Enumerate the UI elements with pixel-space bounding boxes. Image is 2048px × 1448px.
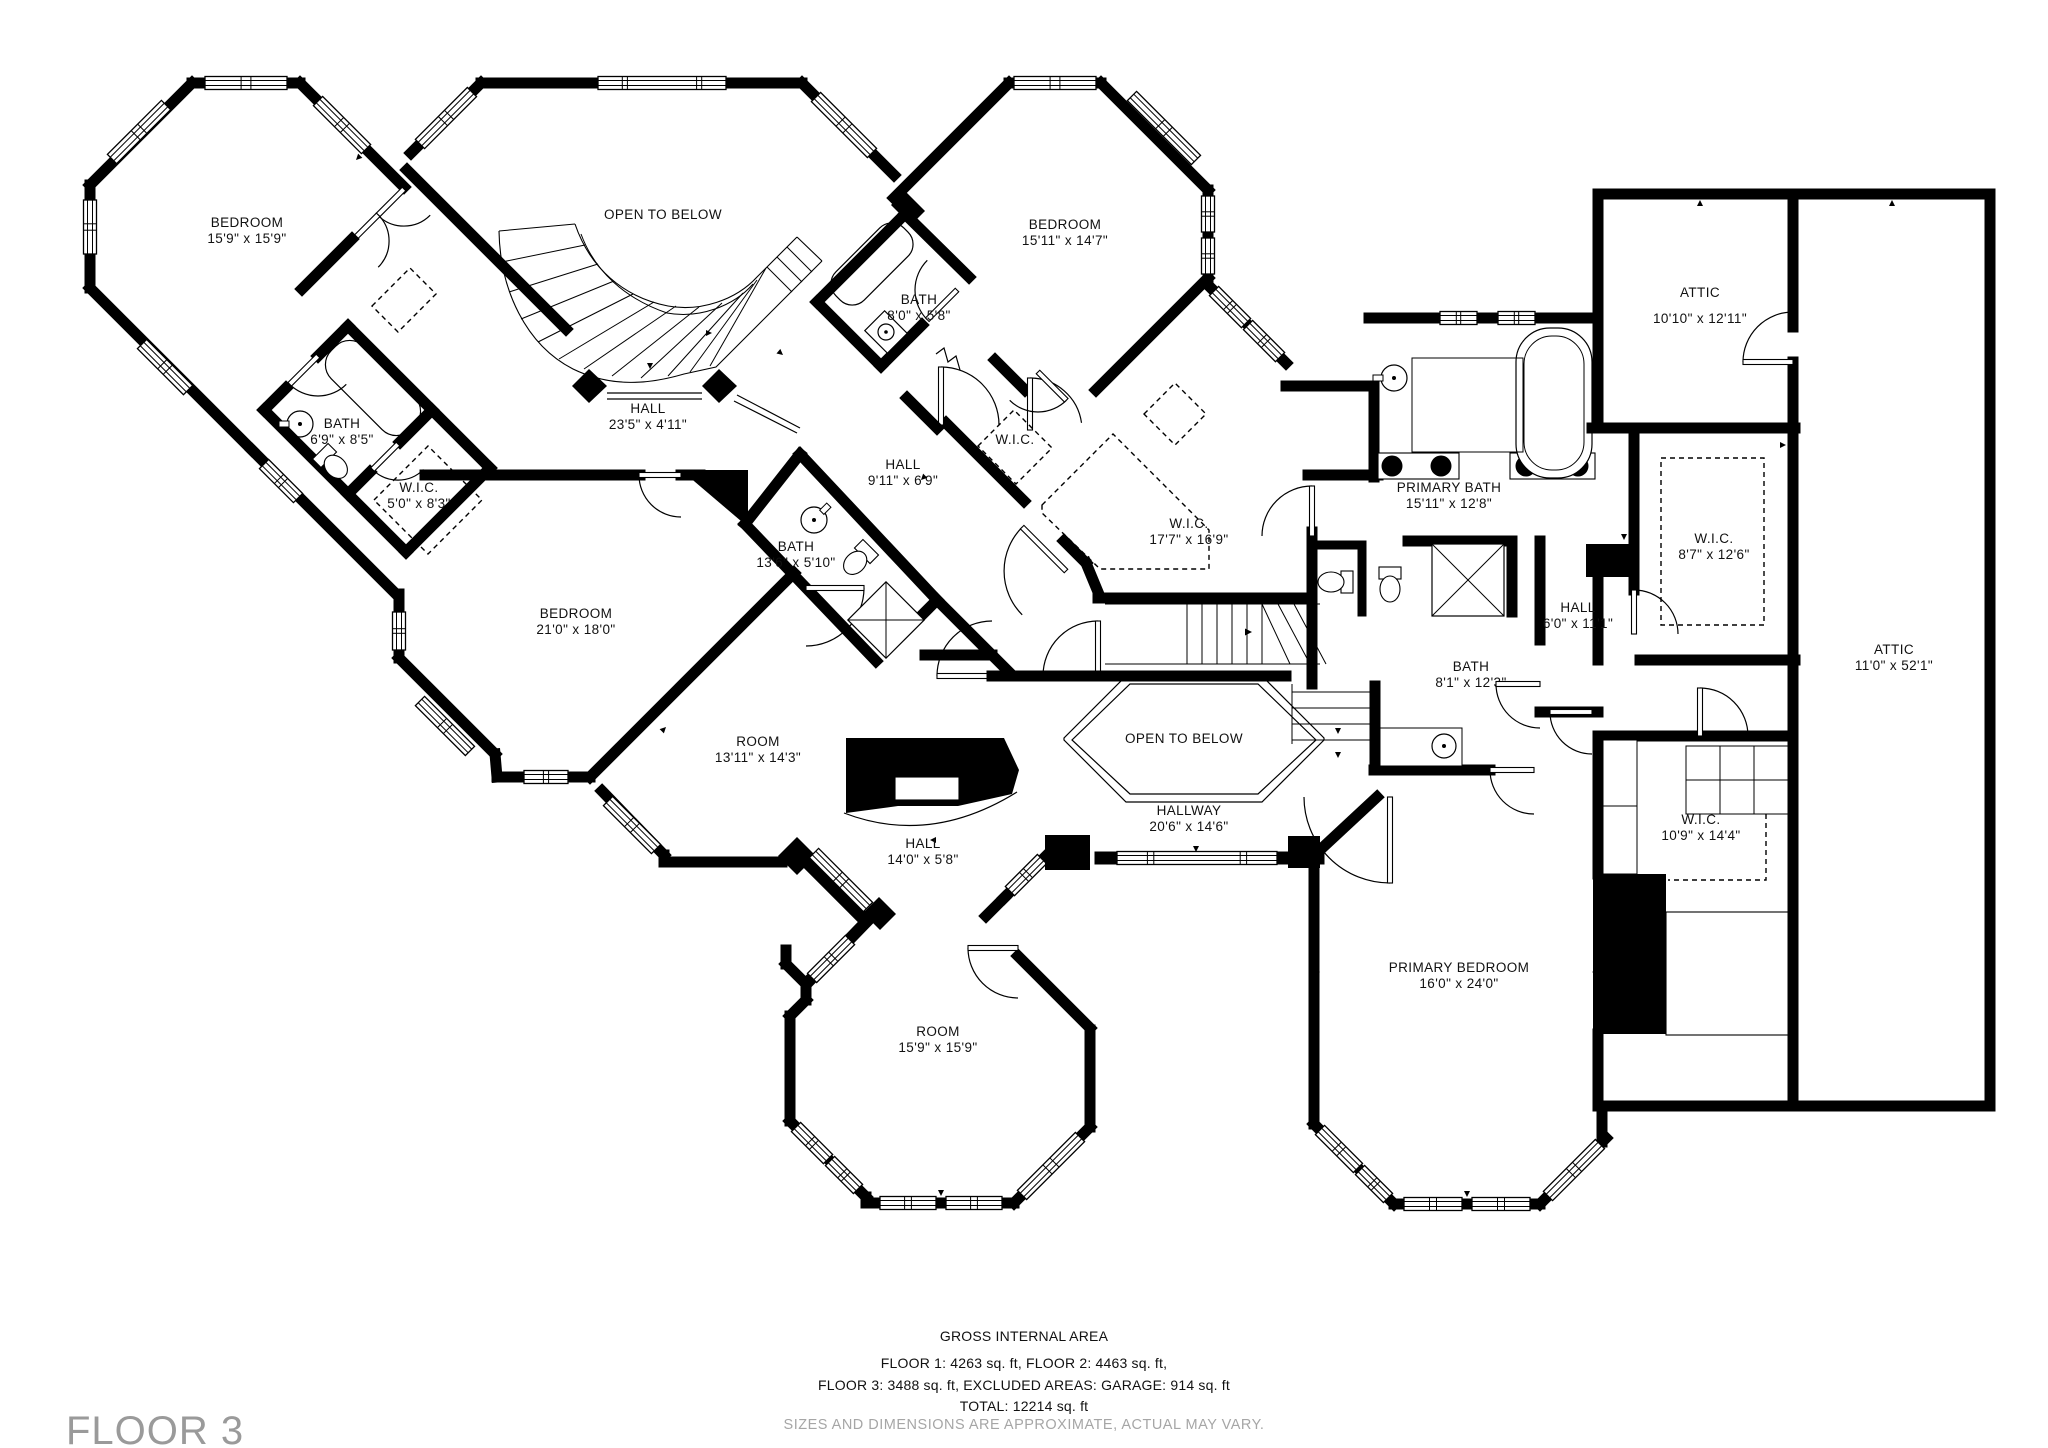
svg-text:BEDROOM: BEDROOM <box>211 215 284 230</box>
svg-text:15'9" x 15'9": 15'9" x 15'9" <box>207 231 286 246</box>
svg-text:BATH: BATH <box>778 539 815 554</box>
svg-text:W.I.C.: W.I.C. <box>1681 812 1720 827</box>
svg-text:TOTAL: 12214 sq. ft: TOTAL: 12214 sq. ft <box>960 1398 1089 1414</box>
svg-text:BATH: BATH <box>901 292 938 307</box>
svg-text:BATH: BATH <box>324 416 361 431</box>
svg-text:GROSS INTERNAL AREA: GROSS INTERNAL AREA <box>940 1328 1109 1344</box>
svg-text:HALL: HALL <box>885 457 920 472</box>
svg-text:PRIMARY BATH: PRIMARY BATH <box>1397 480 1502 495</box>
svg-text:FLOOR 3: FLOOR 3 <box>66 1409 244 1448</box>
svg-text:W.I.C.: W.I.C. <box>1694 531 1733 546</box>
svg-text:15'11" x 12'8": 15'11" x 12'8" <box>1406 496 1492 511</box>
svg-text:10'9" x 14'4": 10'9" x 14'4" <box>1661 828 1740 843</box>
svg-text:W.I.C.: W.I.C. <box>995 432 1034 447</box>
svg-text:FLOOR 3: 3488 sq. ft, EXCLUDED: FLOOR 3: 3488 sq. ft, EXCLUDED AREAS: GA… <box>818 1377 1230 1393</box>
svg-text:17'7" x 16'9": 17'7" x 16'9" <box>1149 532 1228 547</box>
svg-text:W.I.C.: W.I.C. <box>399 480 438 495</box>
svg-text:6'9" x 8'5": 6'9" x 8'5" <box>310 432 373 447</box>
svg-text:ROOM: ROOM <box>736 734 780 749</box>
svg-text:ATTIC: ATTIC <box>1874 642 1914 657</box>
svg-text:20'6" x 14'6": 20'6" x 14'6" <box>1149 819 1228 834</box>
svg-text:OPEN TO BELOW: OPEN TO BELOW <box>1125 731 1243 746</box>
svg-text:FLOOR 1: 4263 sq. ft, FLOOR 2:: FLOOR 1: 4263 sq. ft, FLOOR 2: 4463 sq. … <box>881 1355 1167 1371</box>
svg-text:6'0" x 11'1": 6'0" x 11'1" <box>1543 616 1613 631</box>
svg-text:BEDROOM: BEDROOM <box>540 606 613 621</box>
svg-text:13'11" x 14'3": 13'11" x 14'3" <box>715 750 801 765</box>
svg-text:ATTIC: ATTIC <box>1680 285 1720 300</box>
svg-text:8'0" x 5'8": 8'0" x 5'8" <box>887 308 950 323</box>
svg-text:16'0" x 24'0": 16'0" x 24'0" <box>1419 976 1498 991</box>
svg-text:10'10" x 12'11": 10'10" x 12'11" <box>1653 311 1747 326</box>
svg-text:OPEN TO BELOW: OPEN TO BELOW <box>604 207 722 222</box>
svg-text:23'5" x 4'11": 23'5" x 4'11" <box>609 417 687 432</box>
svg-text:BATH: BATH <box>1453 659 1490 674</box>
svg-text:14'0" x 5'8": 14'0" x 5'8" <box>887 852 958 867</box>
svg-text:11'0" x 52'1": 11'0" x 52'1" <box>1855 658 1933 673</box>
svg-text:HALL: HALL <box>1560 600 1595 615</box>
svg-text:HALLWAY: HALLWAY <box>1157 803 1222 818</box>
svg-text:15'11" x 14'7": 15'11" x 14'7" <box>1022 233 1108 248</box>
svg-text:W.I.C.: W.I.C. <box>1169 516 1208 531</box>
svg-text:8'7" x 12'6": 8'7" x 12'6" <box>1678 547 1749 562</box>
svg-text:SIZES AND DIMENSIONS ARE APPRO: SIZES AND DIMENSIONS ARE APPROXIMATE, AC… <box>784 1417 1265 1433</box>
svg-text:HALL: HALL <box>630 401 665 416</box>
svg-text:PRIMARY BEDROOM: PRIMARY BEDROOM <box>1389 960 1530 975</box>
svg-text:15'9" x 15'9": 15'9" x 15'9" <box>898 1040 977 1055</box>
svg-text:BEDROOM: BEDROOM <box>1029 217 1102 232</box>
svg-text:21'0" x 18'0": 21'0" x 18'0" <box>536 622 615 637</box>
svg-text:ROOM: ROOM <box>916 1024 960 1039</box>
svg-text:9'11" x 6'9": 9'11" x 6'9" <box>868 473 938 488</box>
svg-text:HALL: HALL <box>905 836 940 851</box>
svg-text:5'0" x 8'3": 5'0" x 8'3" <box>387 496 450 511</box>
